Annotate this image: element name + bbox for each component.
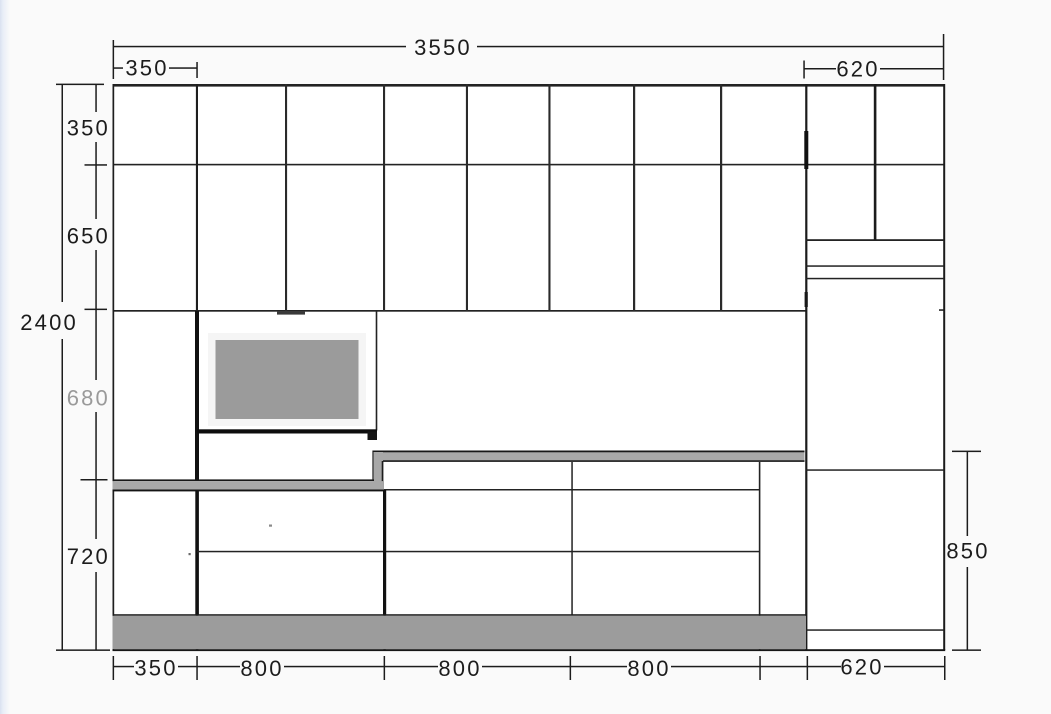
svg-text:650: 650	[67, 224, 110, 249]
svg-text:3550: 3550	[414, 35, 472, 60]
svg-text:620: 620	[840, 655, 883, 680]
svg-text:2400: 2400	[20, 310, 78, 335]
svg-text:680: 680	[67, 386, 110, 411]
svg-text:350: 350	[67, 116, 110, 141]
svg-text:350: 350	[125, 56, 168, 81]
svg-text:350: 350	[134, 656, 177, 681]
svg-text:800: 800	[240, 656, 283, 681]
svg-text:720: 720	[67, 544, 110, 569]
svg-text:850: 850	[946, 539, 989, 564]
svg-text:800: 800	[627, 656, 670, 681]
svg-text:800: 800	[438, 656, 481, 681]
svg-text:620: 620	[836, 57, 879, 82]
